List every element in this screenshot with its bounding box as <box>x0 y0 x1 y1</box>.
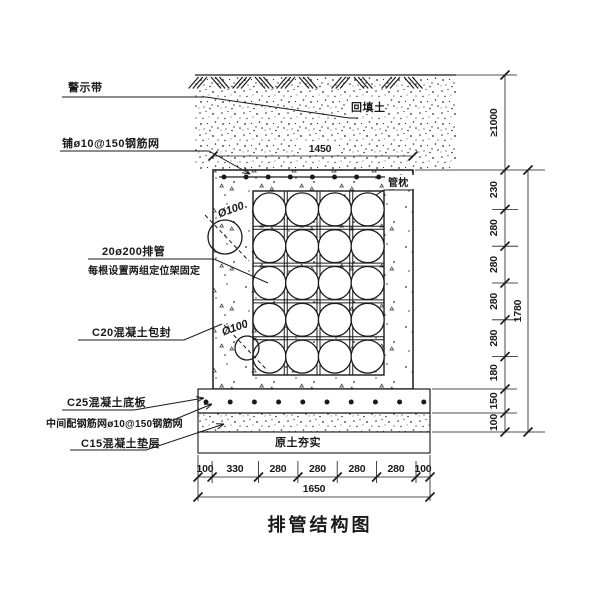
rebar-dot <box>349 400 354 405</box>
label-top-mesh: 铺ø10@150钢筋网 <box>62 136 160 150</box>
dim-bottom-segment-1: 330 <box>227 463 244 475</box>
drawing-canvas: 警示带 回填土 铺ø10@150钢筋网 管枕 20ø200排管 每根设置两组定位… <box>0 0 600 600</box>
pipe-circle <box>351 230 384 263</box>
rebar-dot <box>252 400 257 405</box>
label-middle-mesh: 中间配钢筋网ø10@150钢筋网 <box>46 417 183 430</box>
label-base-plate: C25混凝土底板 <box>67 395 147 409</box>
rebar-dot <box>244 175 249 180</box>
rebar-dot <box>266 175 271 180</box>
label-pipe-sleeper: 管枕 <box>388 176 408 189</box>
drawing-title: 排管结构图 <box>268 514 373 535</box>
pipe-circle <box>286 193 319 226</box>
pipe-circle <box>351 340 384 373</box>
pipe-circle <box>318 230 351 263</box>
label-cushion: C15混凝土垫层 <box>81 436 160 450</box>
label-backfill-soil: 回填土 <box>351 100 386 114</box>
rebar-dot <box>288 175 293 180</box>
dim-right-total: 1780 <box>512 299 524 322</box>
dim-bottom-segment-4: 280 <box>349 463 366 475</box>
pipe-circle <box>351 267 384 300</box>
dim-bottom-segment-2: 280 <box>270 463 287 475</box>
label-compacted-soil: 原土夯实 <box>275 435 321 449</box>
pipe-circle <box>253 340 286 373</box>
pipe-circle <box>286 340 319 373</box>
dim-right-segment-6: 150 <box>488 392 500 409</box>
label-encasement: C20混凝土包封 <box>92 325 171 339</box>
rebar-dot <box>310 175 315 180</box>
dim-right-segment-4: 280 <box>488 329 500 346</box>
label-warning-tape: 警示带 <box>67 80 103 94</box>
pipe-circle <box>286 267 319 300</box>
dim-right-cover-depth: ≥1000 <box>488 108 500 136</box>
pipe-circle <box>318 267 351 300</box>
dim-right-segment-7: 100 <box>488 414 500 431</box>
rebar-dot <box>354 175 359 180</box>
rebar-dot <box>421 400 426 405</box>
rebar-dot <box>376 175 381 180</box>
dim-top-width: 1450 <box>309 143 332 155</box>
dim-right-segment-0: 230 <box>488 181 500 198</box>
rebar-dot <box>332 175 337 180</box>
pipe-circle <box>318 303 351 336</box>
structure-drawing: 警示带 回填土 铺ø10@150钢筋网 管枕 20ø200排管 每根设置两组定位… <box>0 0 600 600</box>
pipe-circle <box>253 303 286 336</box>
pipe-circle <box>351 303 384 336</box>
rebar-dot <box>276 400 281 405</box>
dim-bottom-segment-5: 280 <box>388 463 405 475</box>
dim-bottom-segment-6: 100 <box>415 463 432 475</box>
dim-bottom-segment-0: 100 <box>197 463 214 475</box>
rebar-dot <box>300 400 305 405</box>
pipe-circle <box>253 230 286 263</box>
dim-bottom-total: 1650 <box>303 483 326 495</box>
pipe-circle <box>286 230 319 263</box>
rebar-dot <box>222 175 227 180</box>
dim-right-segment-1: 280 <box>488 219 500 236</box>
dim-right-segment-5: 180 <box>488 364 500 381</box>
pipe-circle <box>286 303 319 336</box>
cushion-layer <box>198 413 430 432</box>
pipe-circle <box>318 193 351 226</box>
pipe-circle <box>253 193 286 226</box>
label-pipe-spec-line2: 每根设置两组定位架固定 <box>88 264 200 277</box>
base-plate <box>198 389 430 413</box>
dim-right-segment-3: 280 <box>488 293 500 310</box>
dim-bottom-segment-3: 280 <box>309 463 326 475</box>
dim-right-segment-2: 280 <box>488 256 500 273</box>
pipe-circle <box>351 193 384 226</box>
rebar-dot <box>228 400 233 405</box>
label-pipe-spec-line1: 20ø200排管 <box>102 244 165 258</box>
rebar-dot <box>373 400 378 405</box>
rebar-dot <box>397 400 402 405</box>
pipe-circle <box>253 267 286 300</box>
pipe-circle <box>318 340 351 373</box>
rebar-dot <box>325 400 330 405</box>
